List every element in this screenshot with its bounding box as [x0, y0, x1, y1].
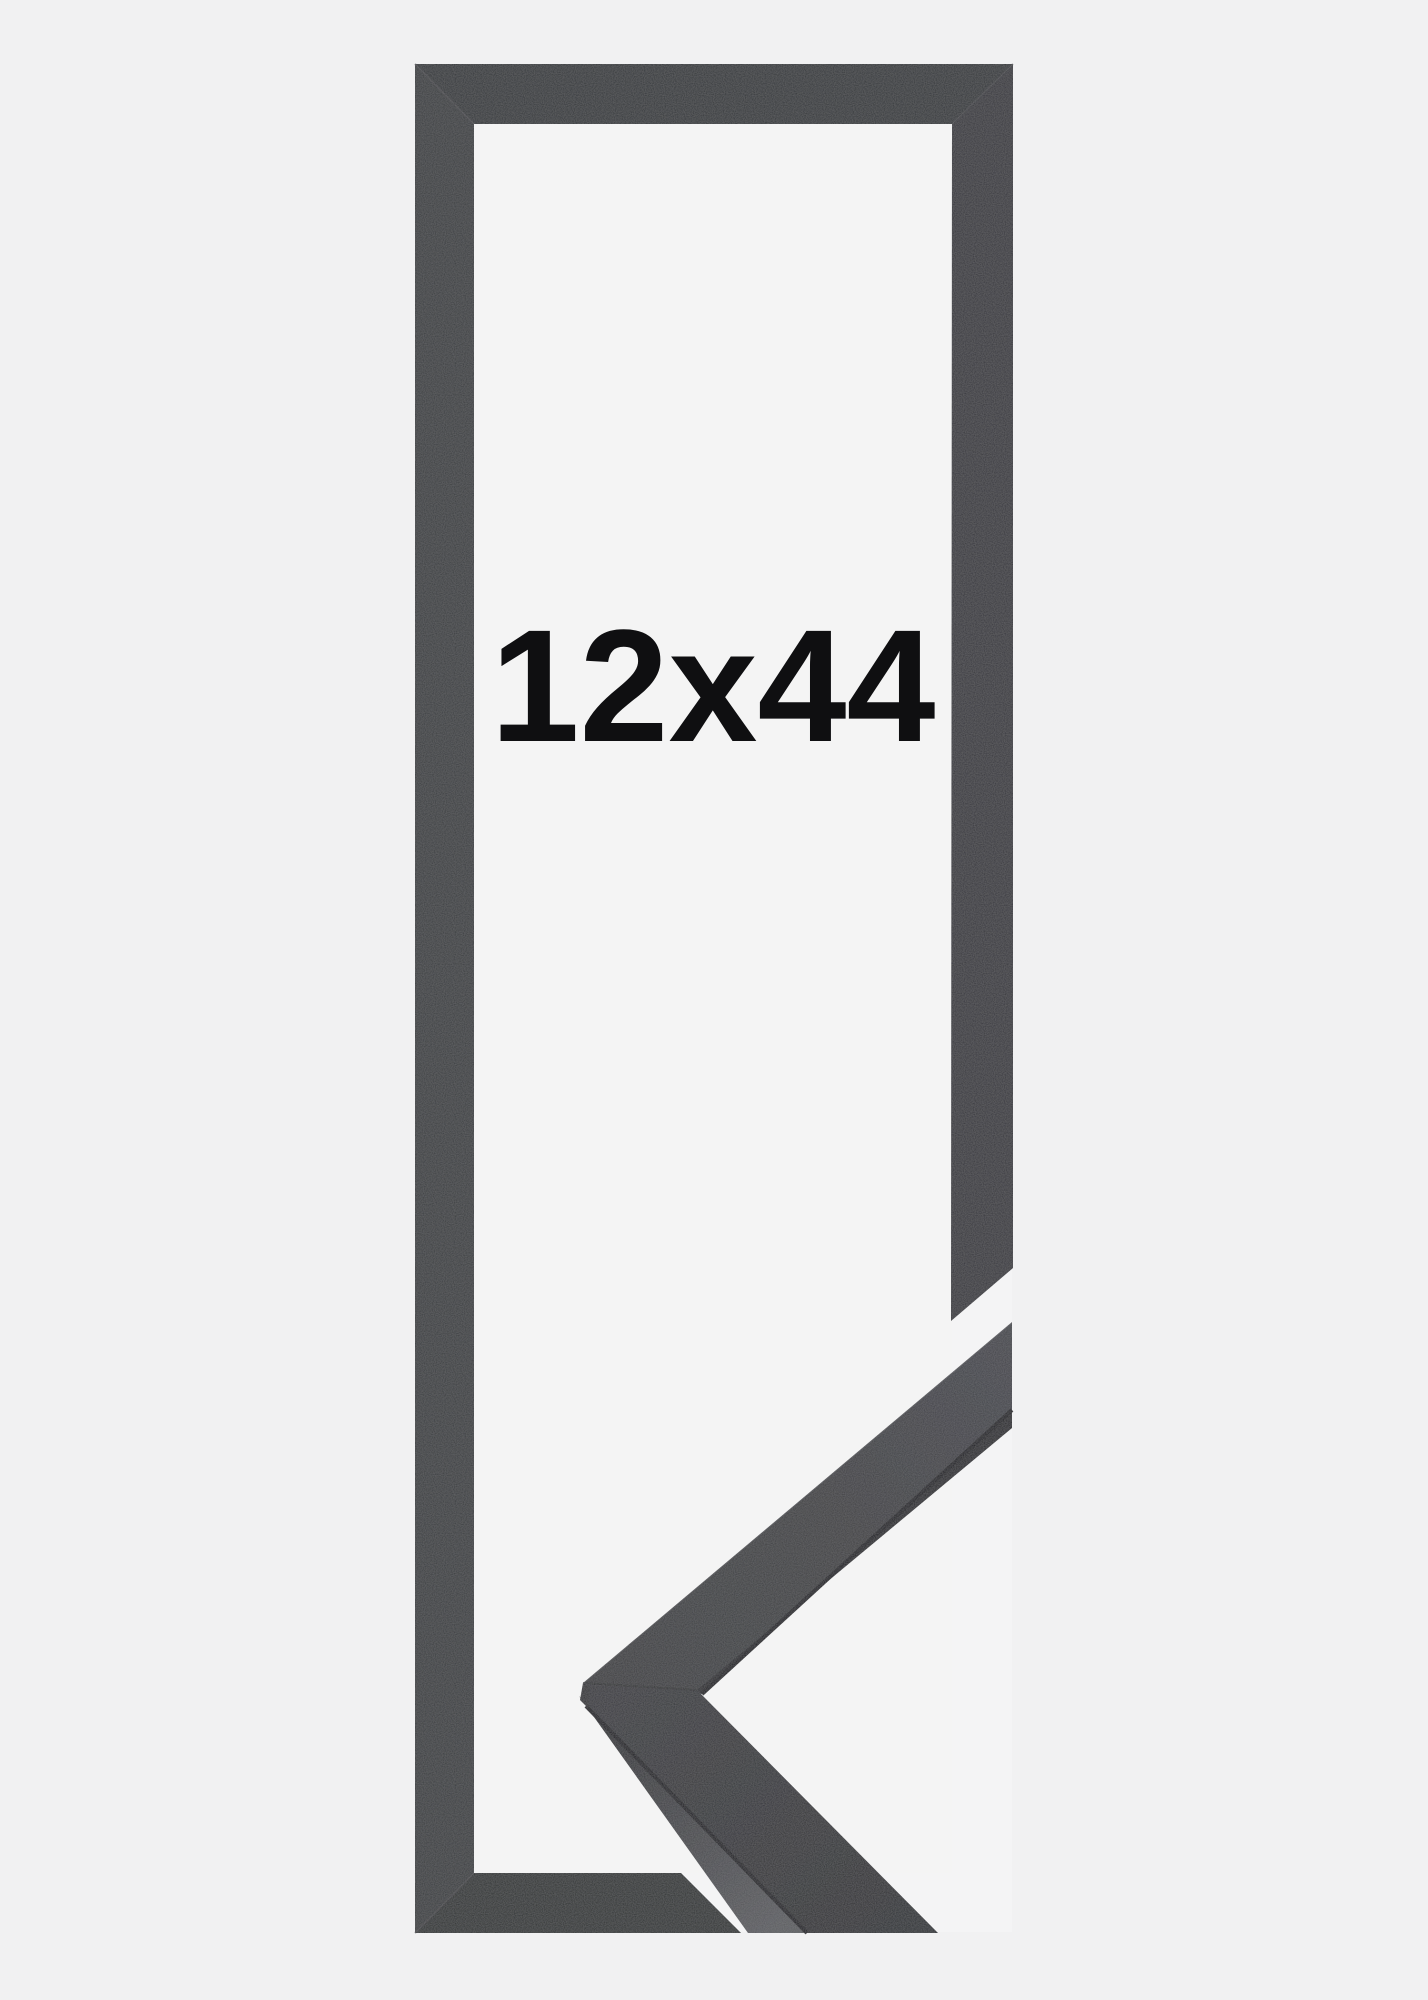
frame-outline-right-bar [951, 64, 1013, 1321]
frame-outline-left-bar [415, 64, 474, 1933]
product-image: 12x44 [0, 0, 1428, 2000]
size-label: 12x44 [474, 606, 952, 766]
frame-product-graphic [0, 0, 1428, 2000]
frame-outline-top-bar [415, 64, 1013, 124]
